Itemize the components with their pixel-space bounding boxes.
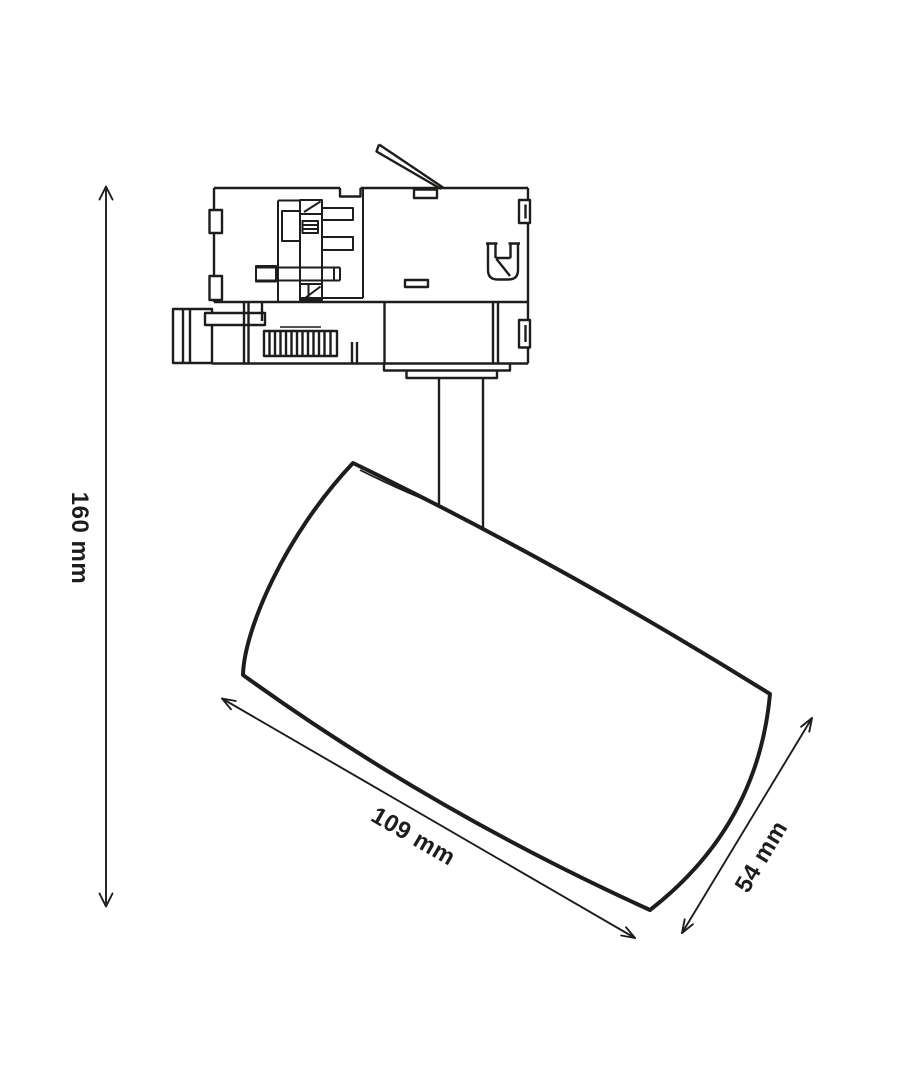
vent-slot — [405, 280, 428, 287]
mech-prong-lower — [322, 237, 353, 250]
dim-length-arrowhead-left — [222, 699, 236, 710]
left-clip-lower — [210, 276, 223, 300]
technical-drawing-svg — [0, 0, 910, 1080]
mech-top-flag — [304, 202, 321, 213]
adapter-inner-verticals — [493, 302, 498, 364]
dim-length-arrow — [222, 699, 635, 939]
stem — [439, 379, 483, 528]
knob-arm — [205, 313, 265, 325]
release-lever — [377, 145, 444, 190]
dim-diameter-arrowhead-top — [801, 718, 812, 732]
dim-diameter-line — [682, 718, 812, 933]
mech-prong-upper — [322, 208, 353, 220]
lever-clip — [414, 190, 437, 199]
lamp-body-outline — [243, 463, 770, 910]
contact-mechanism — [256, 189, 363, 302]
neck-plate-wide — [384, 364, 510, 371]
drawing-canvas: 160 mm 109 mm 54 mm — [0, 0, 910, 1080]
left-clip-upper — [210, 210, 223, 233]
dim-length-line — [222, 699, 635, 939]
mid-vertical-pair — [352, 342, 357, 364]
adapter-top-edge — [214, 188, 528, 197]
lamp-body — [243, 463, 770, 910]
dim-diameter-arrow — [682, 718, 812, 933]
lower-vertical-pair — [244, 302, 249, 364]
ground-hook — [486, 243, 520, 280]
mech-spring — [303, 221, 319, 233]
dim-height-arrow — [100, 187, 113, 907]
dim-length-arrowhead-right — [621, 927, 635, 938]
mech-left-plate — [282, 211, 300, 241]
locking-knob-ridges — [183, 309, 190, 363]
dim-diameter-arrowhead-bottom — [682, 919, 693, 933]
dim-label-height: 160 mm — [65, 492, 93, 584]
mech-spring-coils — [303, 225, 319, 229]
track-adapter-drawing — [173, 145, 530, 379]
